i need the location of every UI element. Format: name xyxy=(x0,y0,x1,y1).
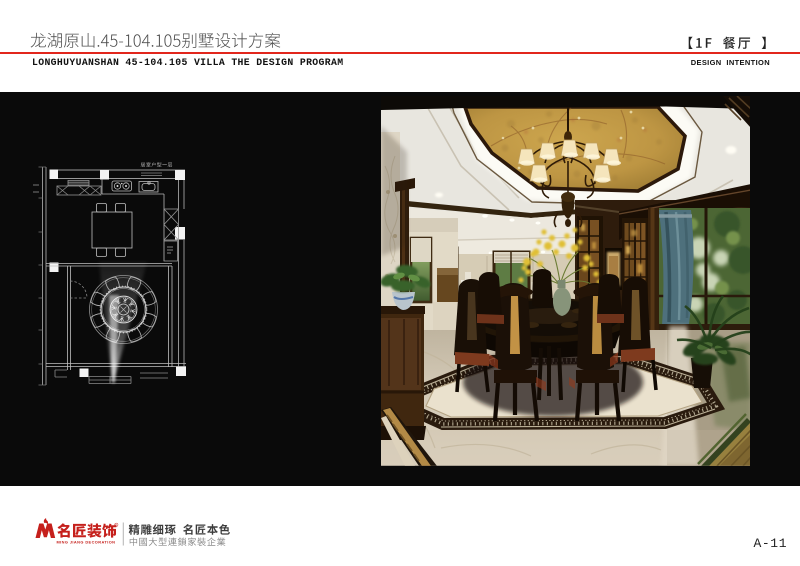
svg-text:A-11: A-11 xyxy=(754,536,788,551)
svg-text:R: R xyxy=(115,523,117,527)
svg-text:MING JIANG DECORATION: MING JIANG DECORATION xyxy=(57,540,116,545)
